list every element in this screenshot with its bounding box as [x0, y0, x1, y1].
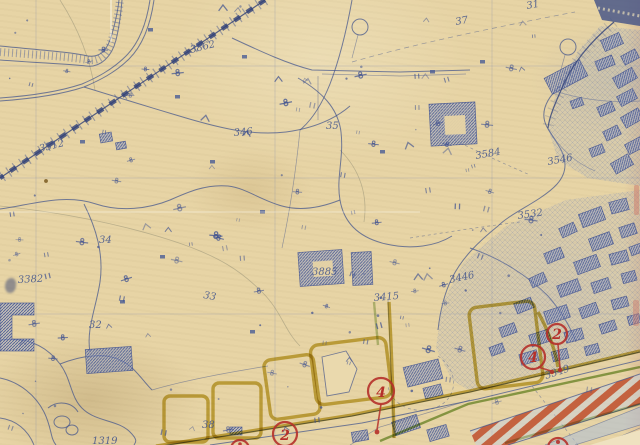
map-label: 38	[202, 420, 215, 431]
open-parcel	[322, 351, 357, 396]
map-drawing: 3862 3512 37 35 346 3584 3546 3382 34 32…	[0, 0, 640, 445]
building	[99, 132, 112, 143]
small-building	[430, 70, 435, 74]
map-label: 3415	[373, 291, 399, 304]
small-building	[480, 60, 485, 64]
paper-crease-horizontal	[0, 211, 420, 213]
small-building	[120, 300, 125, 304]
small-building	[242, 55, 247, 59]
map-label: 346	[233, 126, 254, 139]
ink-scribble	[48, 403, 78, 435]
building	[427, 424, 450, 441]
map-label: 3862	[189, 39, 216, 56]
small-building	[380, 150, 385, 154]
small-building	[210, 160, 215, 164]
building	[115, 141, 126, 150]
map-label: 3584	[475, 147, 502, 162]
small-building	[80, 140, 85, 144]
small-building	[160, 255, 165, 259]
building	[85, 346, 133, 373]
map-label: 3382	[18, 274, 44, 286]
map-label: 32	[89, 320, 102, 331]
map-label: 3512	[38, 138, 65, 155]
pink-edge-mark	[634, 185, 639, 215]
building	[351, 251, 373, 285]
map-label: 1319	[92, 436, 118, 445]
building	[351, 430, 368, 443]
map-label: 35	[326, 121, 339, 132]
railway-embankment	[594, 0, 640, 26]
building	[0, 303, 34, 351]
map-label: 33	[202, 290, 216, 303]
map-label: 31	[526, 0, 540, 12]
red-marker-partial-1	[231, 440, 249, 445]
red-marker-label: 4	[376, 385, 386, 401]
red-marker-label: 4	[528, 350, 538, 366]
small-building	[148, 28, 153, 32]
map-label: 37	[455, 15, 470, 28]
small-building	[250, 330, 255, 334]
red-marker-label: 2	[551, 327, 562, 343]
contour-lines	[0, 0, 365, 346]
map-scan: 3862 3512 37 35 346 3584 3546 3382 34 32…	[0, 0, 640, 445]
pink-edge-mark	[633, 300, 639, 326]
building	[403, 359, 443, 387]
map-label: 34	[99, 235, 112, 246]
small-building	[175, 95, 180, 99]
paper-crease-vertical	[110, 0, 112, 42]
map-label: 3885	[312, 267, 337, 278]
red-marker-label: 2	[279, 428, 290, 444]
